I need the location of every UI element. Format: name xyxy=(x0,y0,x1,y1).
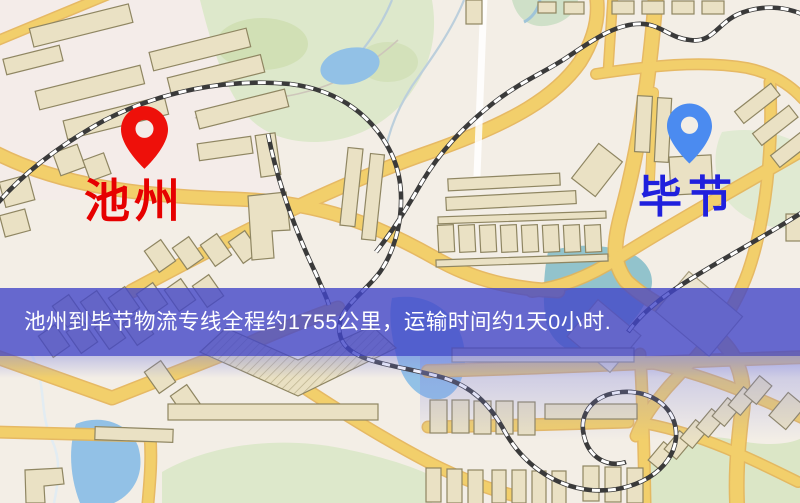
map-screenshot: 池州到毕节物流专线全程约1755公里，运输时间约1天0小时. 池州 毕节 xyxy=(0,0,800,503)
map-canvas xyxy=(0,0,800,503)
origin-pin-icon xyxy=(121,105,168,170)
route-summary-banner: 池州到毕节物流专线全程约1755公里，运输时间约1天0小时. xyxy=(0,288,800,356)
banner-glow-right xyxy=(420,356,800,440)
destination-label: 毕节 xyxy=(638,176,738,220)
destination-pin-icon xyxy=(667,102,712,165)
origin-label: 池州 xyxy=(84,178,184,224)
route-summary-text: 池州到毕节物流专线全程约1755公里，运输时间约1天0小时. xyxy=(0,288,800,356)
